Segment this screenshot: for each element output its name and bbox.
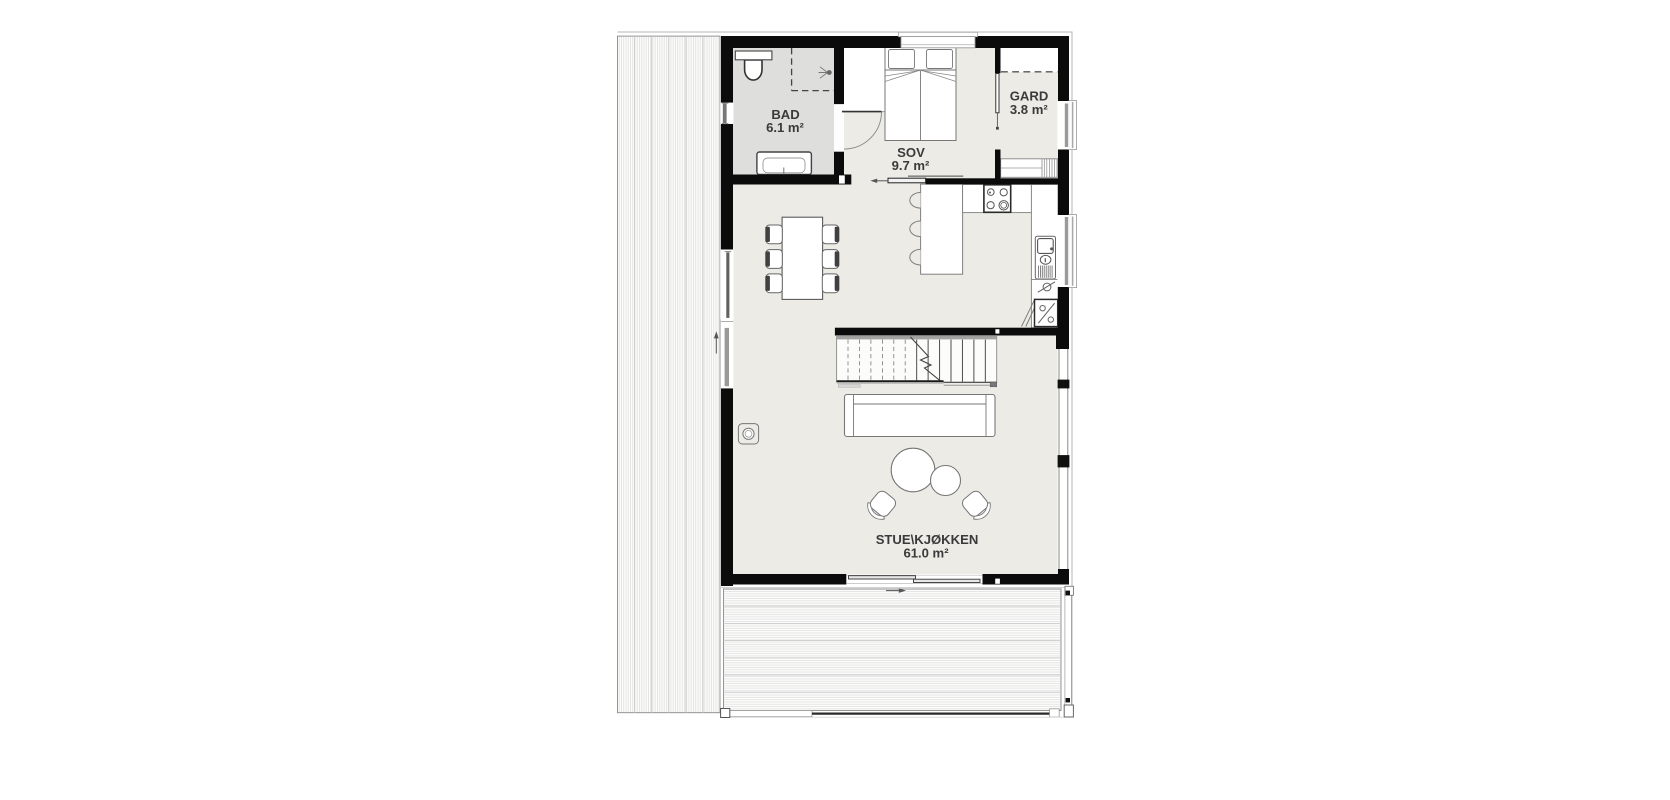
svg-text:3.8 m²: 3.8 m²	[1010, 102, 1048, 117]
svg-text:61.0 m²: 61.0 m²	[903, 545, 949, 560]
svg-text:9.7 m²: 9.7 m²	[892, 158, 930, 173]
svg-text:6.1 m²: 6.1 m²	[766, 120, 804, 135]
